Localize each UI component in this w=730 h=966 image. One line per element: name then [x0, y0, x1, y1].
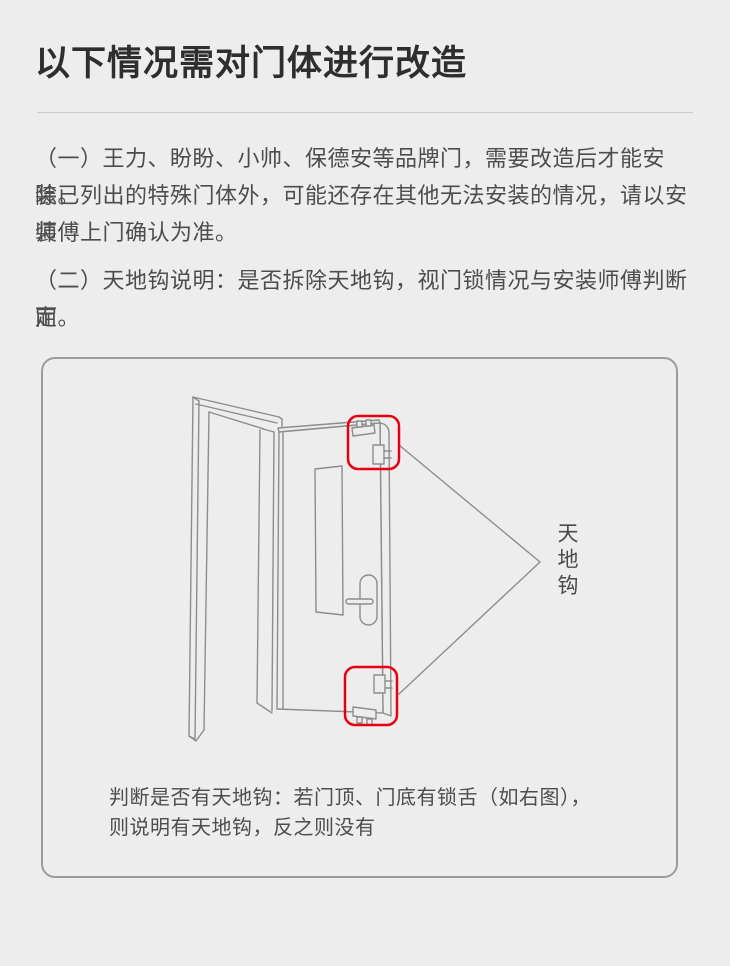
frame-right-post-inner [257, 430, 260, 703]
frame-top-jamb [209, 412, 264, 429]
frame-left-post [189, 397, 199, 739]
title-divider [37, 112, 693, 113]
top-bolt-prong [366, 420, 371, 426]
paragraph-line: （一）王力、盼盼、小帅、保德安等品牌门，需要改造后才能安装。 [35, 140, 697, 177]
frame-right-post-foot [257, 703, 272, 713]
paragraph-brand-doors: （一）王力、盼盼、小帅、保德安等品牌门，需要改造后才能安装。 除已列出的特殊门体… [35, 140, 697, 251]
hook-diagram-panel: 天地钩 判断是否有天地钩：若门顶、门底有锁舌（如右图）， 则说明有天地钩，反之则… [41, 357, 678, 878]
caption-line: 判断是否有天地钩：若门顶、门底有锁舌（如右图）， [109, 783, 615, 813]
page-title: 以下情况需对门体进行改造 [35, 44, 695, 84]
caption-line: 则说明有天地钩，反之则没有 [109, 813, 615, 843]
door-handle-bar [346, 599, 373, 604]
door-modification-notice-page: 以下情况需对门体进行改造 （一）王力、盼盼、小帅、保德安等品牌门，需要改造后才能… [0, 0, 730, 966]
paragraph-line: 定。 [35, 299, 697, 336]
paragraph-line: 师傅上门确认为准。 [35, 214, 697, 251]
diagram-caption: 判断是否有天地钩：若门顶、门底有锁舌（如右图）， 则说明有天地钩，反之则没有 [109, 783, 615, 843]
door-frame [189, 397, 282, 741]
frame-left-jamb [204, 412, 209, 730]
top-side-bolt [373, 445, 384, 464]
leader-lines [399, 445, 540, 694]
paragraph-hook-explanation: （二）天地钩说明：是否拆除天地钩，视门锁情况与安装师傅判断而 定。 [35, 262, 697, 336]
window-cutout [315, 466, 343, 615]
hook-label: 天地钩 [551, 522, 581, 600]
paragraph-line: （二）天地钩说明：是否拆除天地钩，视门锁情况与安装师傅判断而 [35, 262, 697, 299]
bottom-bolt-prong [357, 717, 362, 723]
top-bolt-prong [357, 421, 362, 427]
frame-right-post-outer [272, 432, 274, 711]
frame-right-post-top [263, 429, 274, 432]
bottom-side-bolt [374, 675, 385, 693]
paragraph-line: 除已列出的特殊门体外，可能还存在其他无法安装的情况，请以安装 [35, 177, 697, 214]
